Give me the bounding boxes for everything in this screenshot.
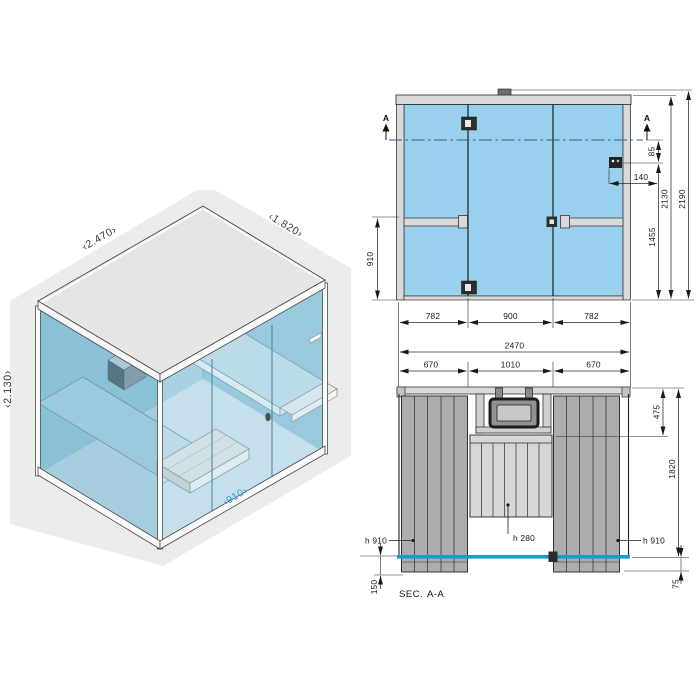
elev-roof-bar — [396, 95, 631, 105]
plan-middle-bench — [470, 435, 552, 517]
iso-door-handle — [265, 413, 270, 421]
isometric-view: ‹2.470› ‹1.820› ‹2.130› ‹910› — [2, 190, 351, 566]
plan-dim-670b: 670 — [586, 360, 601, 370]
elev-frame-right — [623, 105, 631, 301]
plan-leader-h910-right: h 910 — [616, 536, 665, 546]
plan-back-wall — [397, 387, 630, 394]
plan-h280-label: h 280 — [513, 533, 535, 543]
elev-bottom-rail — [404, 296, 623, 300]
elev-frame-left — [397, 105, 405, 301]
plan-dim-1010: 1010 — [501, 360, 521, 370]
elev-dim-2190: 2190 — [677, 189, 687, 209]
elev-glass — [404, 105, 623, 297]
plan-dim-1820: 1820 — [667, 459, 677, 479]
front-elevation-view: A A 910 85 140 1455 — [365, 89, 694, 387]
section-a-right-label: A — [644, 113, 650, 123]
plan-corner-post-left — [397, 387, 405, 397]
iso-height-label: ‹2.130› — [2, 370, 14, 408]
elev-roof-element — [498, 89, 511, 95]
elev-hinge-bottom — [462, 281, 477, 294]
elev-dim-910: 910 — [365, 252, 375, 267]
plan-section-title: SEC. — [399, 589, 423, 600]
section-a-left-label: A — [383, 113, 389, 123]
elev-dim-1455: 1455 — [647, 227, 657, 247]
elev-lock-detail — [609, 157, 622, 168]
plan-dim-150: 150 — [369, 580, 379, 595]
elev-hinge-top — [462, 117, 477, 130]
elev-dim-2130: 2130 — [660, 189, 670, 209]
elev-section-marker-left: A — [383, 113, 390, 140]
plan-dim-475: 475 — [652, 405, 662, 420]
elev-dim-2470: 2470 — [505, 341, 525, 351]
elev-dim-782b: 782 — [584, 311, 599, 321]
plan-front-glass-line — [397, 555, 630, 559]
plan-left-bench — [402, 396, 468, 572]
plan-dim-670a: 670 — [424, 360, 439, 370]
elev-dim-140: 140 — [634, 172, 649, 182]
drawing-sheet: ‹2.470› ‹1.820› ‹2.130› ‹910› — [0, 0, 700, 700]
elev-dim-782a: 782 — [426, 311, 441, 321]
plan-left-dimensions: 150 — [360, 543, 403, 594]
plan-section-view: 670 1010 670 — [360, 360, 689, 601]
elev-dim-85: 85 — [647, 147, 657, 157]
plan-h910-left-label: h 910 — [365, 536, 387, 546]
plan-dim-75: 75 — [671, 579, 681, 589]
elev-door-handle — [547, 217, 558, 228]
technical-drawing-svg: ‹2.470› ‹1.820› ‹2.130› ‹910› — [0, 0, 700, 700]
plan-h910-right-label: h 910 — [643, 536, 665, 546]
elev-dim-900: 900 — [503, 311, 518, 321]
plan-top-dimensions: 670 1010 670 — [400, 360, 629, 388]
plan-section-name: A-A — [427, 589, 444, 600]
plan-heater — [490, 399, 538, 427]
plan-right-bench — [554, 396, 620, 572]
elev-section-marker-right: A — [644, 113, 651, 140]
plan-door-handle — [549, 552, 558, 563]
